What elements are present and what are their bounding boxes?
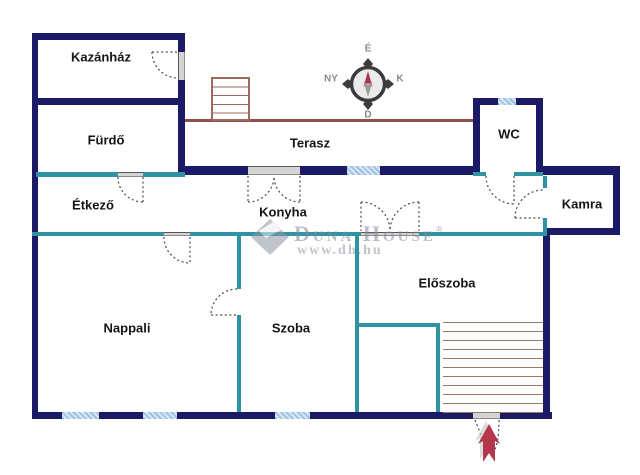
entrance-swing-lines [475,420,499,456]
wall-kazanhaz-furdo-divider [32,98,183,105]
door-arc-nappali-szoba [211,289,237,315]
compass-rose-icon [342,58,394,110]
room-label-kazanhaz: Kazánház [71,50,131,65]
wall-kazanhaz-right-upper [178,33,185,52]
room-label-wc: WC [498,127,520,142]
room-label-etkezo: Étkező [72,198,114,213]
door-arc-kazanhaz [152,52,178,78]
wall-mid-a [32,232,164,236]
wall-bottom-e [500,412,552,419]
room-label-szoba: Szoba [272,321,310,336]
room-label-kamra: Kamra [562,197,602,212]
wall-furdo-bottom-a [36,172,118,177]
wall-bottom-d [310,412,473,419]
wall-closet-top [357,323,440,327]
wall-bottom-b [99,412,143,419]
wall-eloszoba-right [543,228,550,419]
window-wc [498,98,516,105]
wall-konyha-top-c [380,166,480,175]
wall-wc-bottom-b [514,172,543,176]
compass-south-needle [364,81,373,97]
compass-label-south: D [364,110,371,121]
wall-kamra-left-b [543,218,547,232]
wall-kamra-right [613,166,620,235]
door-arc-furdo [118,177,143,202]
compass-north-needle [364,71,373,87]
compass-label-north: É [365,44,372,55]
compass-label-east: K [396,74,403,85]
floor-plan: Duna House® www.dh.hu Kazánház Fürdő Ter… [0,0,640,475]
wall-konyha-top-b [300,166,347,175]
door-lintel-etkezo [164,232,190,236]
entrance-arrow-icon [475,421,500,462]
window-konyha [347,166,380,175]
wall-kazanhaz-top [32,33,185,40]
wall-wc-bottom-a [473,172,486,176]
watermark-url: www.dh.hu [297,243,383,259]
door-arc-wc [486,176,514,204]
wall-wc-right [536,98,543,174]
wall-closet-right [436,323,440,412]
terrace-stairs [211,77,250,121]
wall-furdo-right [178,80,185,176]
door-lintel-kazanhaz [178,52,185,80]
wall-left [32,33,38,419]
wall-furdo-bottom-b [143,172,185,177]
wall-kamra-bottom [543,228,620,235]
compass-label-west: NY [324,74,338,85]
wall-bottom-a [32,412,62,419]
window-szoba [275,412,310,419]
watermark-diamond-icon [251,219,289,255]
eloszoba-stairs [443,322,543,413]
wall-konyha-top-a [178,166,248,175]
room-label-furdo: Fürdő [88,133,125,148]
door-arc-etkezo-nappali [164,237,190,263]
room-label-nappali: Nappali [104,321,151,336]
wall-nappali-szoba-b [237,315,241,412]
door-arc-kamra [515,190,543,218]
wall-nappali-szoba-a [237,234,241,289]
door-lintel-konyha-terasz [248,166,300,175]
wall-bottom-c [177,412,275,419]
door-arc-konyha-terasz [248,176,300,202]
entrance-sill [473,412,500,419]
window-nappali-1 [62,412,99,419]
wall-wc-left [473,98,480,174]
wall-kamra-top [536,166,620,175]
room-label-konyha: Konyha [259,205,307,220]
wall-kamra-left-a [543,176,547,188]
window-nappali-2 [143,412,177,419]
room-label-terasz: Terasz [290,136,330,151]
door-lintel-furdo [118,172,143,177]
watermark-reg-mark: ® [436,225,443,235]
room-label-eloszoba: Előszoba [418,276,475,291]
